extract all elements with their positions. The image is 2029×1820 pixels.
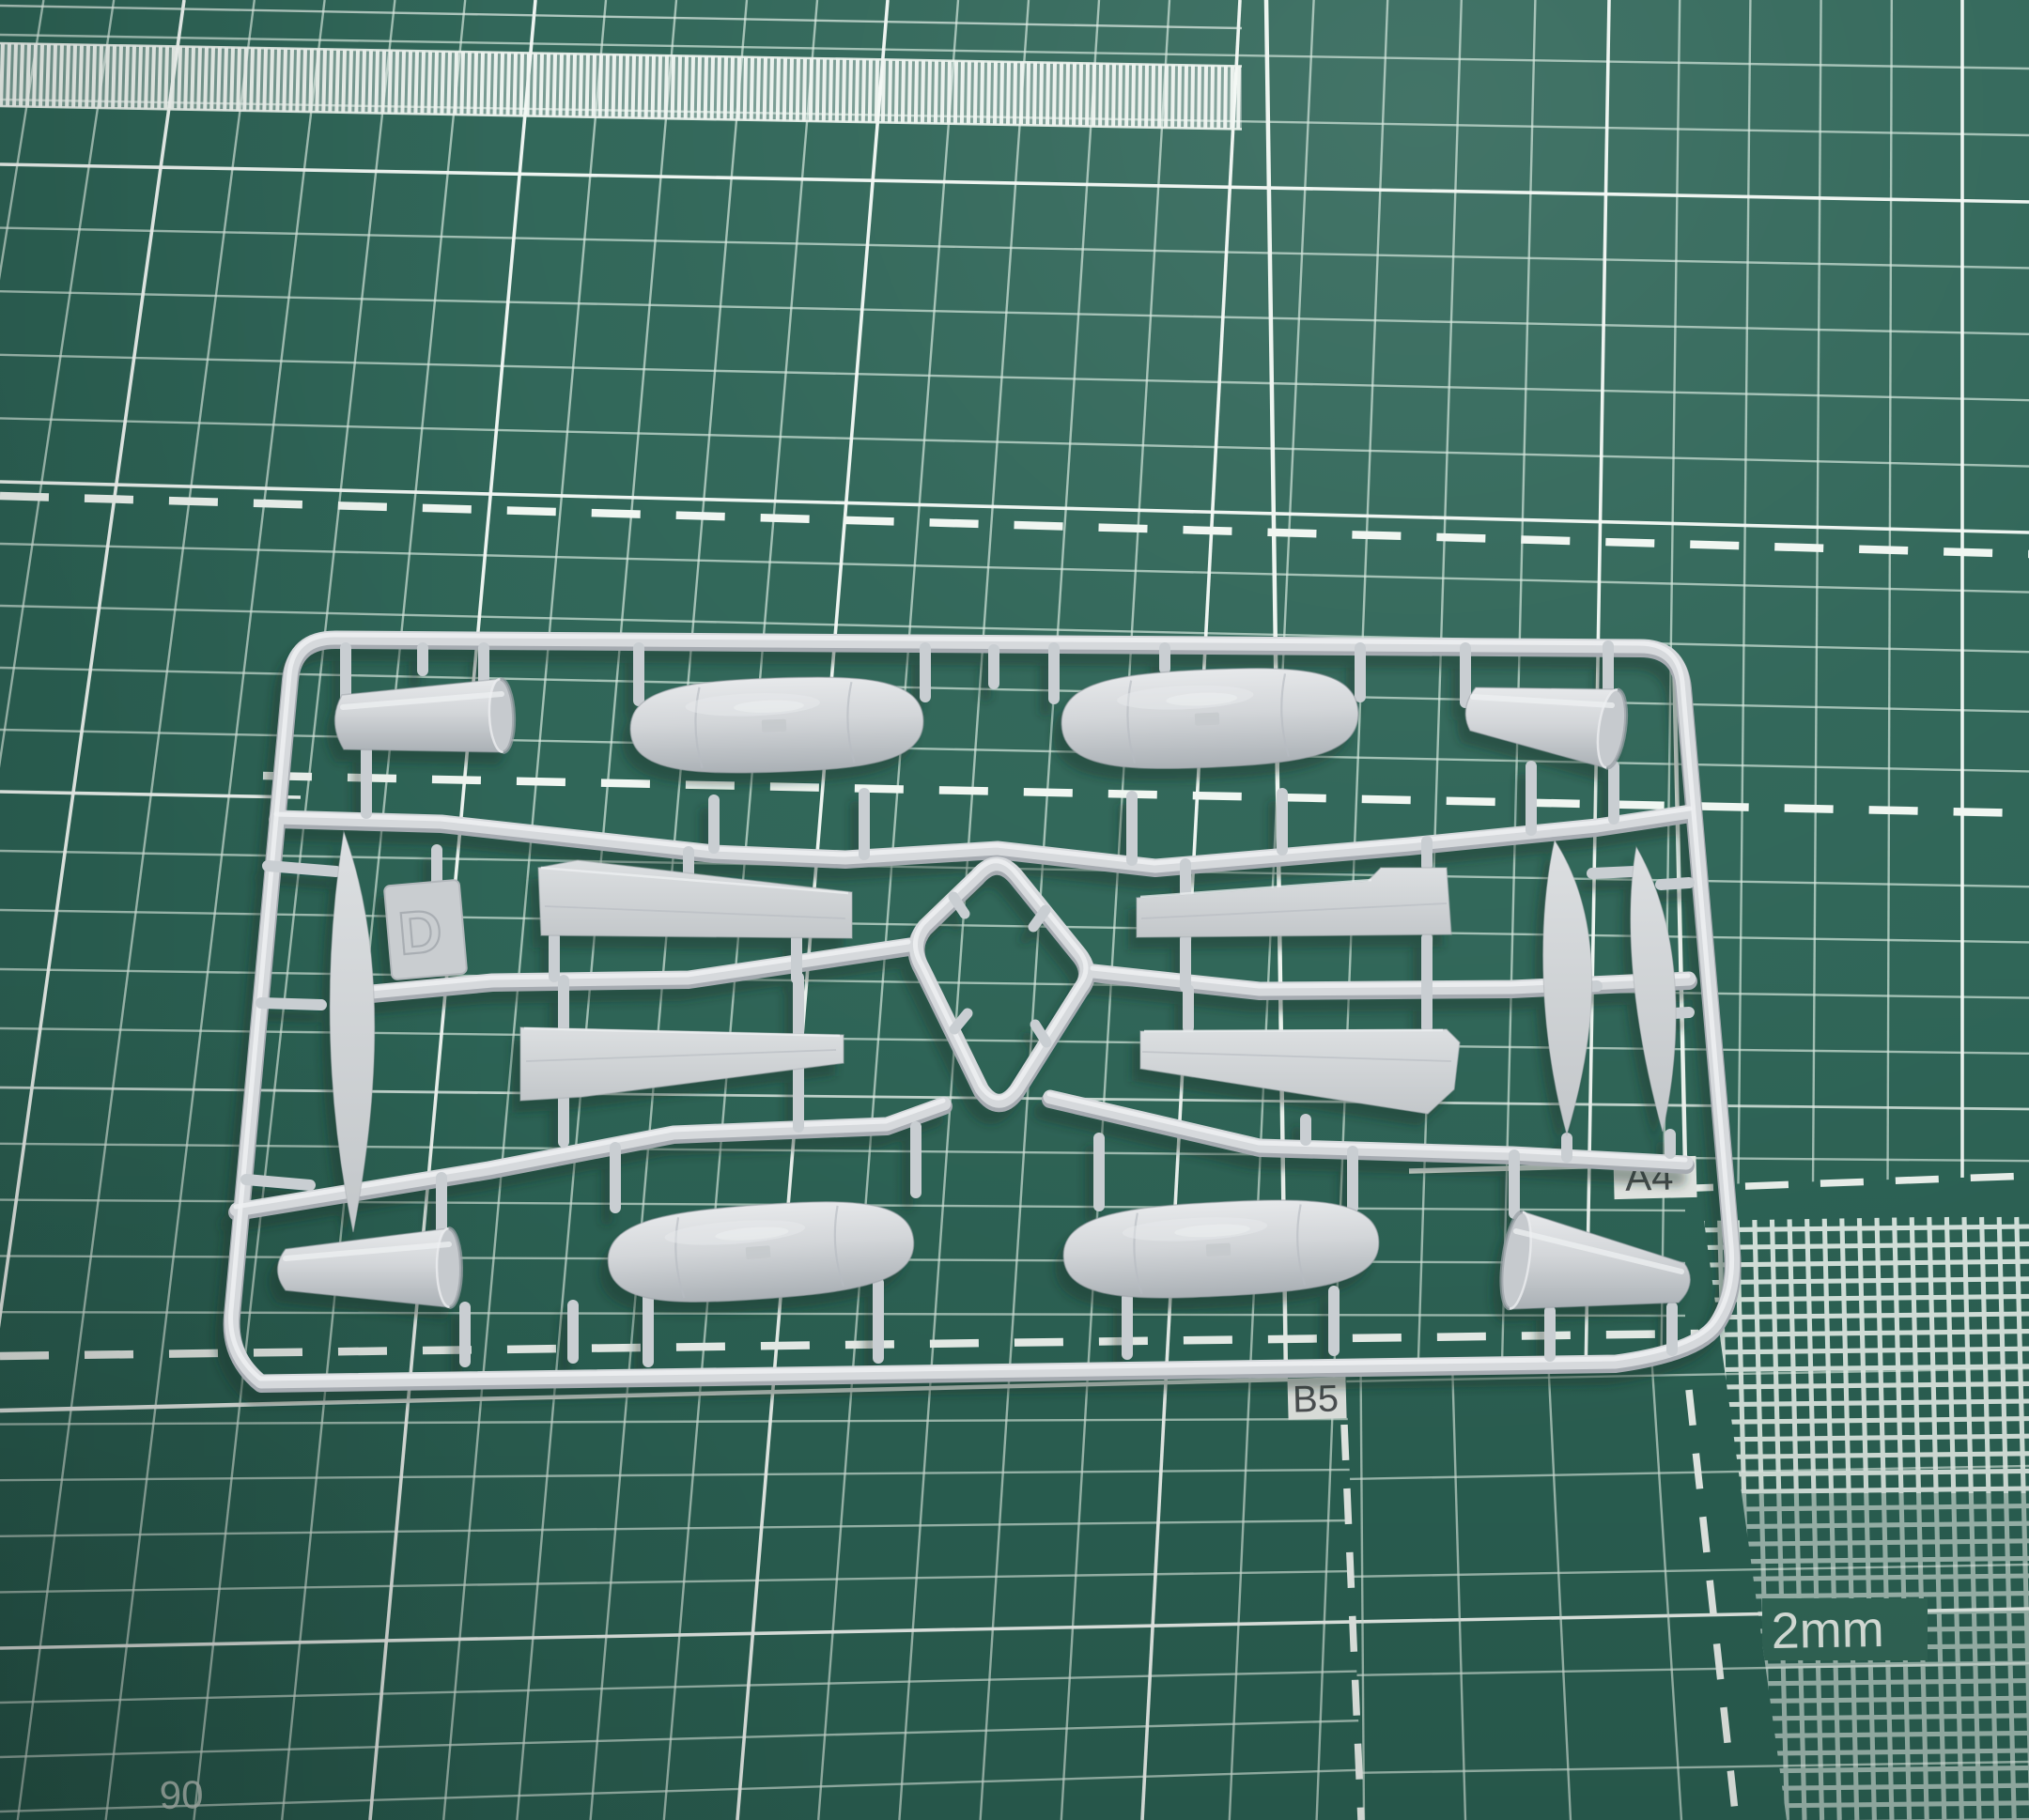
svg-text:D: D — [395, 897, 444, 968]
